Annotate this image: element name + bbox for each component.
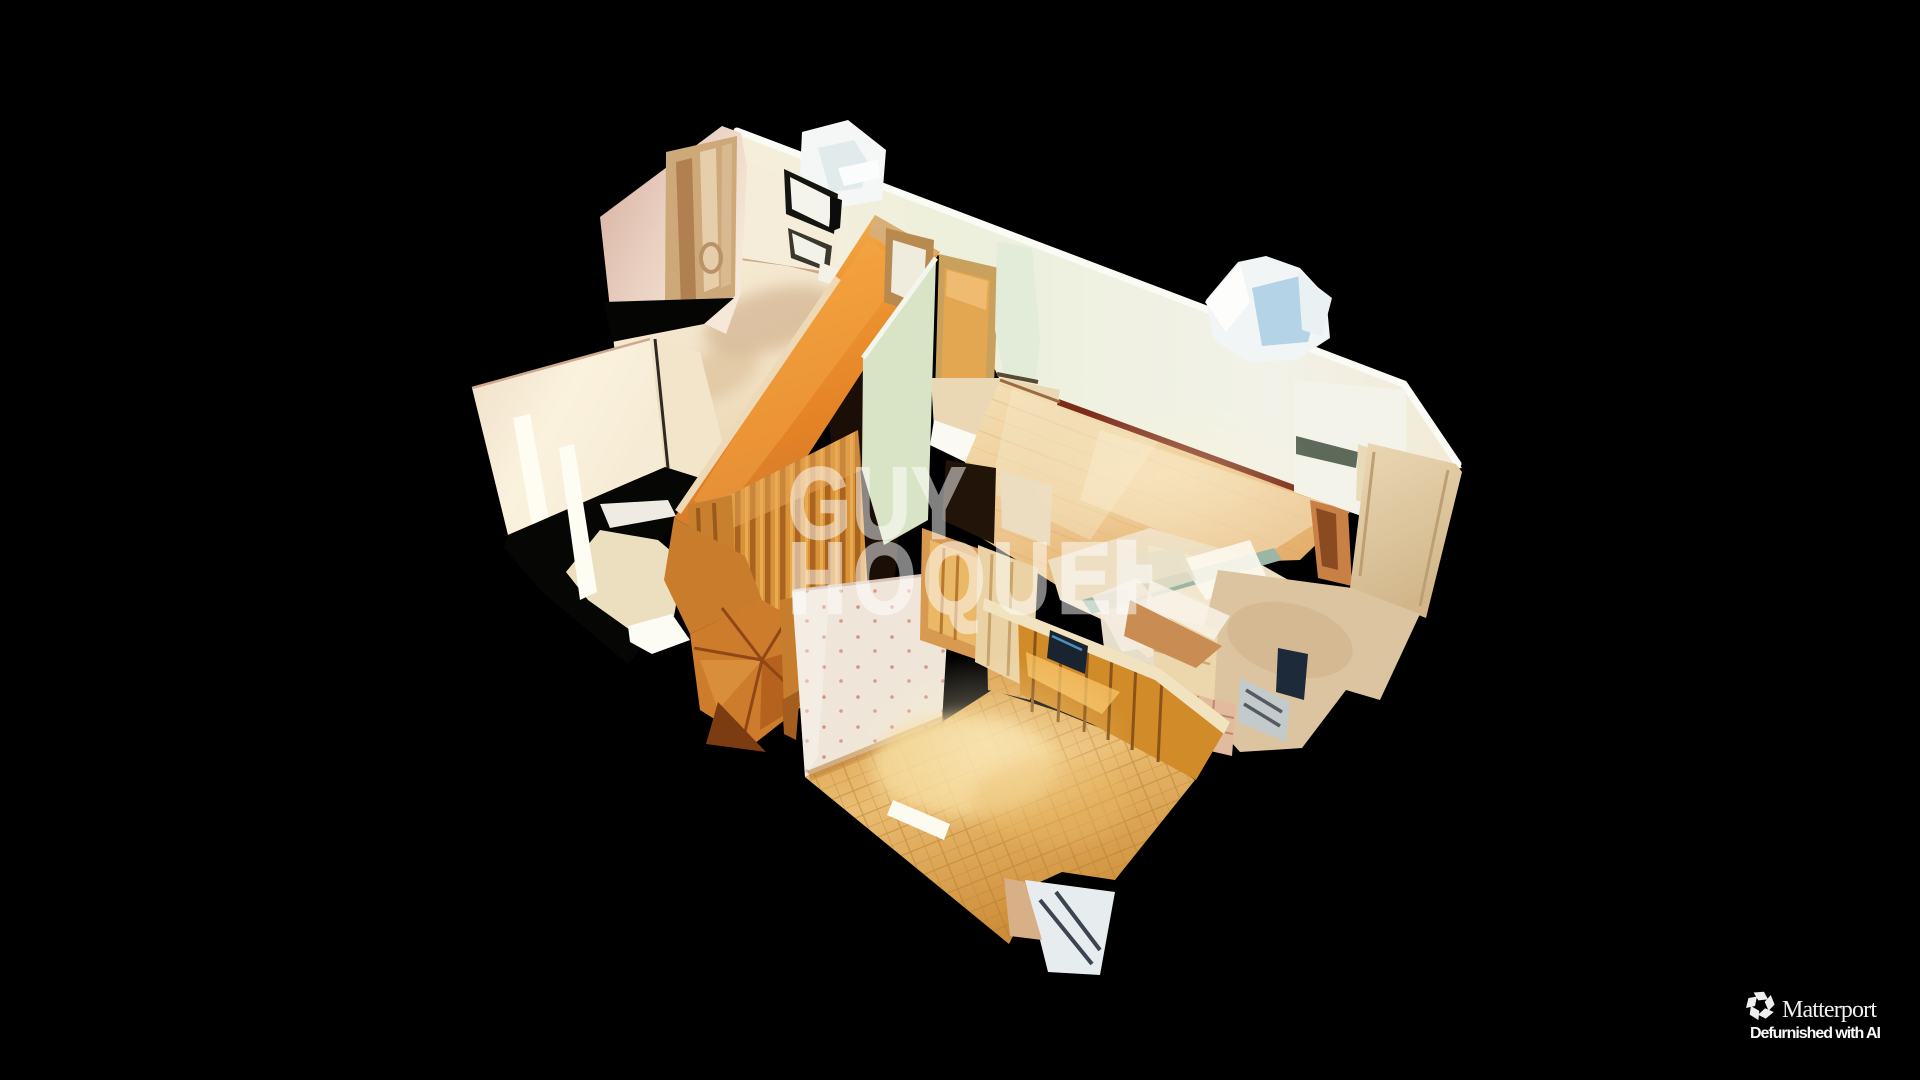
svg-text:Matterport: Matterport	[1782, 997, 1877, 1023]
svg-text:Defurnished with AI: Defurnished with AI	[1750, 1025, 1881, 1042]
svg-text:HOQUE: HOQUE	[788, 522, 1114, 635]
